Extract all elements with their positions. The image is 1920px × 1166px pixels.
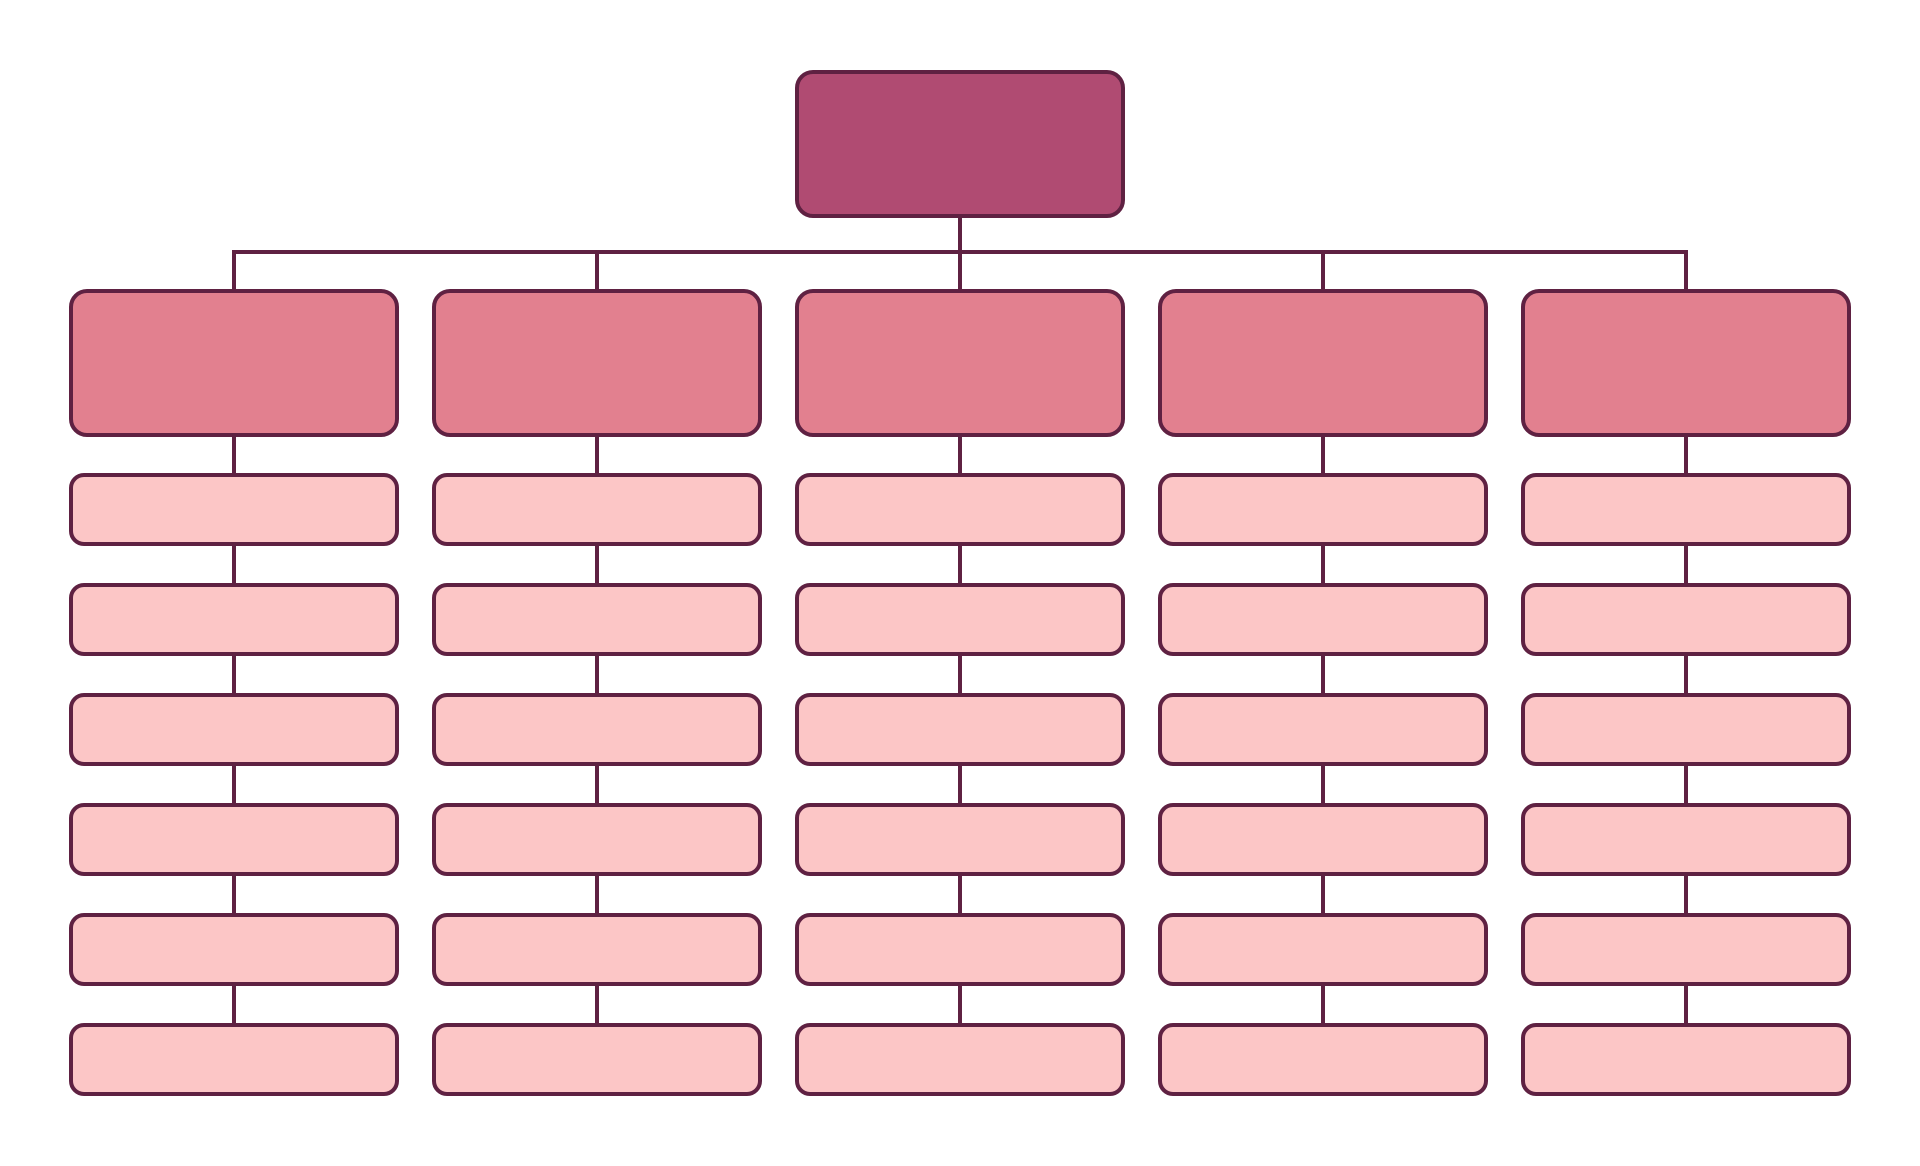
leaf-node bbox=[1521, 473, 1851, 546]
branch-node bbox=[1158, 289, 1488, 437]
leaf-node bbox=[795, 1023, 1125, 1096]
leaf-node bbox=[1158, 473, 1488, 546]
leaf-node bbox=[1521, 693, 1851, 766]
leaf-node bbox=[795, 693, 1125, 766]
leaf-node bbox=[69, 583, 399, 656]
leaf-node bbox=[432, 803, 762, 876]
leaf-node bbox=[69, 803, 399, 876]
leaf-node bbox=[1521, 803, 1851, 876]
leaf-node bbox=[795, 913, 1125, 986]
leaf-node bbox=[795, 473, 1125, 546]
leaf-node bbox=[69, 913, 399, 986]
leaf-node bbox=[432, 473, 762, 546]
branch-node bbox=[795, 289, 1125, 437]
org-chart-canvas bbox=[0, 0, 1920, 1166]
leaf-node bbox=[432, 1023, 762, 1096]
leaf-node bbox=[795, 803, 1125, 876]
leaf-node bbox=[1521, 583, 1851, 656]
leaf-node bbox=[1158, 913, 1488, 986]
leaf-node bbox=[1158, 1023, 1488, 1096]
leaf-node bbox=[69, 1023, 399, 1096]
leaf-node bbox=[1521, 1023, 1851, 1096]
branch-node bbox=[69, 289, 399, 437]
branch-node bbox=[432, 289, 762, 437]
leaf-node bbox=[432, 913, 762, 986]
branch-node bbox=[1521, 289, 1851, 437]
leaf-node bbox=[795, 583, 1125, 656]
leaf-node bbox=[69, 693, 399, 766]
leaf-node bbox=[432, 693, 762, 766]
org-chart-nodes-layer bbox=[0, 0, 1920, 1166]
leaf-node bbox=[1158, 693, 1488, 766]
leaf-node bbox=[1158, 583, 1488, 656]
leaf-node bbox=[432, 583, 762, 656]
leaf-node bbox=[69, 473, 399, 546]
leaf-node bbox=[1158, 803, 1488, 876]
root-node bbox=[795, 70, 1125, 218]
leaf-node bbox=[1521, 913, 1851, 986]
